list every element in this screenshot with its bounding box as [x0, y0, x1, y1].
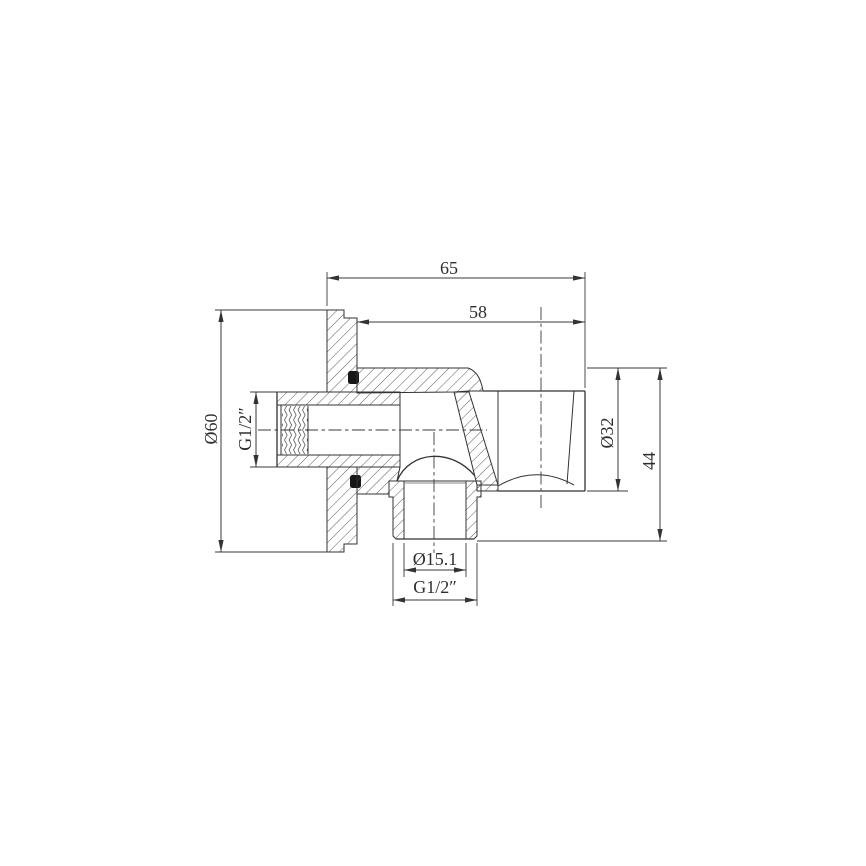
dim-label-inlet-thread: G1/2″	[235, 407, 255, 451]
dim-label-body-width: 58	[469, 302, 487, 322]
valve-seat-dome	[397, 456, 475, 481]
dim-label-overall-height: 44	[639, 452, 659, 470]
outlet-spout	[389, 481, 474, 539]
technical-drawing: 65 58 Ø60 G1/2″ Ø32 44 Ø15.1 G1/2″	[0, 0, 866, 866]
inlet-pipe	[277, 392, 400, 467]
holder-cup	[483, 391, 585, 491]
dim-label-outlet-bore: Ø15.1	[413, 549, 458, 569]
drawing-canvas: 65 58 Ø60 G1/2″ Ø32 44 Ø15.1 G1/2″	[0, 0, 866, 866]
dim-label-flange-diameter: Ø60	[201, 414, 221, 445]
dim-label-overall-width: 65	[440, 258, 458, 278]
dim-label-outlet-thread: G1/2″	[413, 577, 457, 597]
wall-flange	[327, 310, 357, 552]
dim-label-holder-diameter: Ø32	[597, 418, 617, 449]
dimension-labels: 65 58 Ø60 G1/2″ Ø32 44 Ø15.1 G1/2″	[201, 258, 659, 597]
